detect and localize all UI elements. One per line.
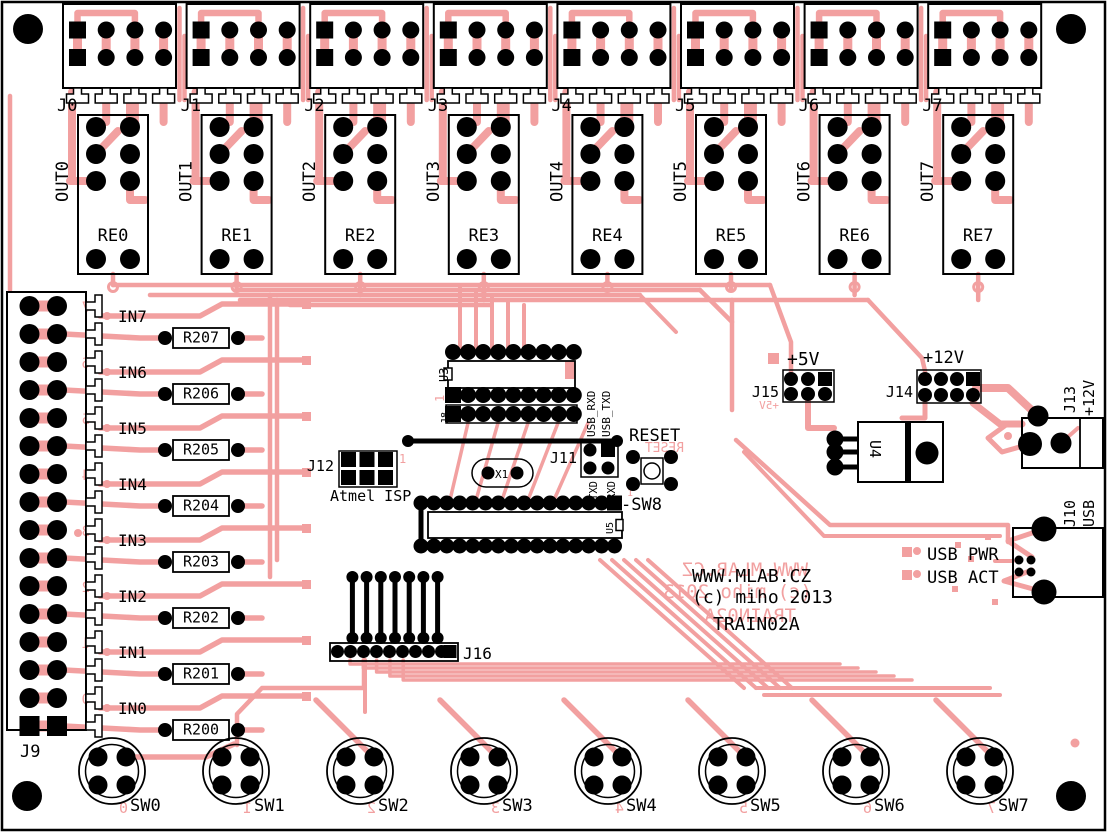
pad — [716, 49, 733, 66]
pad — [784, 372, 798, 386]
label-relay-re6: RE6 — [839, 226, 870, 246]
pad — [457, 144, 477, 164]
pad — [333, 249, 353, 269]
pad — [951, 144, 971, 164]
pad — [1020, 49, 1037, 66]
label-jack-12v: +12V — [1080, 380, 1098, 416]
via-dot — [1004, 432, 1012, 440]
pad — [20, 632, 40, 652]
mounting-hole — [12, 781, 42, 811]
pad — [491, 496, 506, 511]
pad — [566, 344, 582, 360]
copper-pour — [302, 412, 311, 421]
pad — [20, 576, 40, 596]
pad-square — [563, 22, 580, 39]
pad — [1015, 556, 1024, 565]
copper-pour — [302, 524, 311, 533]
label-input: IN5 — [118, 419, 147, 438]
pad — [241, 776, 260, 795]
label-header-j12: J12 — [307, 457, 334, 475]
via-dot — [103, 312, 111, 320]
pad — [950, 372, 964, 386]
pad — [650, 22, 667, 39]
pad — [20, 548, 40, 568]
pad — [457, 171, 477, 191]
label-ic-u3: U3 — [437, 368, 451, 382]
copper-pour — [302, 356, 311, 365]
pad — [833, 748, 852, 767]
pad — [402, 435, 414, 447]
pad — [491, 117, 511, 137]
pad — [555, 496, 570, 511]
pad — [155, 49, 172, 66]
label-connector-j3: J3 — [428, 96, 448, 116]
pad — [126, 49, 143, 66]
via-dot — [913, 547, 921, 555]
label-switch-sw4: SW4 — [626, 796, 657, 816]
pad — [566, 406, 582, 422]
pad — [1051, 433, 1072, 454]
pad — [934, 372, 948, 386]
pad-square — [20, 716, 40, 736]
pad — [517, 496, 532, 511]
pad — [20, 492, 40, 512]
pad — [664, 477, 678, 491]
pad — [521, 344, 537, 360]
pad — [801, 372, 815, 386]
pad-square — [563, 49, 580, 66]
pad — [985, 117, 1005, 137]
pad-square — [811, 49, 828, 66]
pad — [432, 571, 444, 583]
label-brand-title: TRAIN02A — [713, 614, 800, 635]
pad — [489, 776, 508, 795]
pad — [231, 611, 245, 625]
label-ic-u4: U4 — [866, 440, 884, 458]
pad — [709, 776, 728, 795]
label-output-out3: OUT3 — [424, 161, 444, 202]
pad — [374, 22, 391, 39]
pad — [773, 49, 790, 66]
pad — [839, 49, 856, 66]
pad — [521, 387, 537, 403]
pad — [580, 117, 600, 137]
label-switch-sw7: SW7 — [998, 796, 1029, 816]
pad — [86, 171, 106, 191]
label-output-out1: OUT1 — [177, 161, 197, 202]
pad — [20, 380, 40, 400]
pad — [1032, 580, 1057, 605]
pad — [469, 49, 486, 66]
pad — [744, 22, 761, 39]
pad-square — [69, 22, 86, 39]
label-plus12v: +12V — [923, 348, 964, 368]
copper-pour — [302, 636, 311, 645]
pad — [934, 388, 948, 402]
label-connector-j2: J2 — [304, 96, 324, 116]
label-jack-j13: J13 — [1061, 386, 1079, 413]
copper-pour — [985, 534, 991, 540]
copper-pour — [302, 300, 311, 309]
pad — [744, 49, 761, 66]
mounting-hole — [13, 14, 43, 44]
pad — [231, 443, 245, 457]
pad — [985, 249, 1005, 269]
pad — [47, 296, 67, 316]
pad — [738, 249, 758, 269]
pad — [897, 22, 914, 39]
pad — [244, 249, 264, 269]
pad — [536, 387, 552, 403]
label-pin1: 1 — [399, 452, 406, 466]
pad — [614, 117, 634, 137]
pad — [868, 22, 885, 39]
pad — [337, 748, 356, 767]
pad — [862, 117, 882, 137]
pad — [664, 450, 678, 464]
via-dot — [913, 570, 921, 578]
pad — [1027, 568, 1036, 577]
pad — [784, 387, 798, 401]
pad — [461, 776, 480, 795]
pad — [581, 539, 596, 554]
pad — [613, 748, 632, 767]
pad — [331, 645, 344, 658]
pad — [417, 571, 429, 583]
pad — [478, 539, 493, 554]
label-switch-sw2: SW2 — [378, 796, 409, 816]
pad — [613, 776, 632, 795]
pad — [120, 249, 140, 269]
label-usb: USB — [1080, 500, 1098, 527]
pad — [966, 388, 980, 402]
pad — [580, 171, 600, 191]
pad — [117, 776, 136, 795]
pad — [158, 331, 172, 345]
regulator-tab-bar — [905, 422, 911, 482]
pad — [1015, 568, 1024, 577]
pad — [126, 22, 143, 39]
via-dot — [103, 368, 111, 376]
pad — [951, 171, 971, 191]
pcb-layout-train02a: 7654321011RESET1WWW.MLAB.CZ(c) miho 2013… — [0, 0, 1107, 832]
pad-square — [934, 22, 951, 39]
pad — [490, 387, 506, 403]
pad — [155, 22, 172, 39]
pad — [370, 645, 383, 658]
pad — [210, 171, 230, 191]
pad — [482, 467, 495, 480]
pad — [517, 539, 532, 554]
pad — [621, 49, 638, 66]
pad — [210, 117, 230, 137]
pad — [602, 462, 615, 475]
label-header-j15: J15 — [752, 383, 779, 401]
copper-pour — [902, 570, 912, 580]
pad — [158, 555, 172, 569]
label-resistor: R205 — [183, 441, 219, 459]
pad-square — [440, 49, 457, 66]
pad — [345, 22, 362, 39]
pad — [402, 22, 419, 39]
pad — [120, 171, 140, 191]
pad — [241, 748, 260, 767]
pad — [489, 748, 508, 767]
pad — [457, 249, 477, 269]
label-usb-j10: J10 — [1061, 500, 1079, 527]
via-dot — [103, 424, 111, 432]
pad — [20, 408, 40, 428]
pad — [460, 406, 476, 422]
label-header-j16: J16 — [463, 644, 492, 663]
pad — [621, 22, 638, 39]
pad — [963, 22, 980, 39]
pad — [490, 406, 506, 422]
pad — [862, 171, 882, 191]
pad — [231, 331, 245, 345]
pad-square — [687, 22, 704, 39]
pad — [20, 688, 40, 708]
pad — [120, 117, 140, 137]
label-connector-j6: J6 — [799, 96, 819, 116]
label-switch-sw1: SW1 — [254, 796, 285, 816]
pad-square — [360, 470, 375, 485]
pad — [704, 249, 724, 269]
label-connector-j7: J7 — [922, 96, 942, 116]
pad — [738, 144, 758, 164]
pad — [580, 144, 600, 164]
pad-square — [378, 452, 393, 467]
label-output-out2: OUT2 — [300, 161, 320, 202]
pad — [543, 539, 558, 554]
pad — [1018, 432, 1042, 456]
pad — [827, 444, 844, 461]
pad-square — [316, 22, 333, 39]
pad — [47, 380, 67, 400]
pad — [344, 645, 357, 658]
pad — [704, 117, 724, 137]
pad — [985, 144, 1005, 164]
pad — [415, 497, 427, 509]
regulator-hole — [916, 442, 939, 465]
label-output-out7: OUT7 — [918, 161, 938, 202]
pad — [839, 22, 856, 39]
pad — [47, 436, 67, 456]
pad — [47, 464, 67, 484]
label-plus5v: +5V — [787, 349, 820, 370]
pad-square — [69, 49, 86, 66]
pad — [231, 723, 245, 737]
label-switch-sw5: SW5 — [750, 796, 781, 816]
label-resistor: R206 — [183, 385, 219, 403]
label-relay-re2: RE2 — [345, 226, 376, 246]
pad — [950, 388, 964, 402]
label-input: IN2 — [118, 587, 147, 606]
pad — [20, 296, 40, 316]
pad — [704, 171, 724, 191]
pad — [47, 492, 67, 512]
pad — [918, 372, 932, 386]
pad — [475, 344, 491, 360]
pad — [566, 387, 582, 403]
pad — [439, 539, 454, 554]
pad — [439, 496, 454, 511]
pad — [221, 49, 238, 66]
pad — [47, 660, 67, 680]
label-connector-j0: J0 — [57, 96, 77, 116]
pad-square — [341, 470, 356, 485]
label-resistor: R202 — [183, 609, 219, 627]
label-connector-j1: J1 — [181, 96, 201, 116]
label-connector-j4: J4 — [551, 96, 571, 116]
pad — [737, 776, 756, 795]
label-switch-sw6: SW6 — [874, 796, 905, 816]
pad — [526, 22, 543, 39]
pad — [551, 344, 567, 360]
pad-square — [193, 49, 210, 66]
pad — [594, 539, 609, 554]
pad — [250, 22, 267, 39]
pad — [818, 387, 832, 401]
copper-pour — [902, 547, 912, 557]
pad-square — [811, 22, 828, 39]
pad — [86, 249, 106, 269]
pad — [985, 171, 1005, 191]
pad — [868, 49, 885, 66]
label-resistor: R204 — [183, 497, 219, 515]
pad — [551, 406, 567, 422]
pad — [951, 249, 971, 269]
pad — [158, 443, 172, 457]
pad — [511, 467, 524, 480]
pad — [861, 776, 880, 795]
pad — [403, 571, 415, 583]
pad — [210, 249, 230, 269]
pad-square — [607, 496, 622, 511]
pad — [213, 748, 232, 767]
pad — [505, 406, 521, 422]
pad-square — [378, 470, 393, 485]
pad — [827, 459, 844, 476]
pad — [536, 344, 552, 360]
label-header-j8: J8 — [440, 412, 451, 424]
pad — [1020, 22, 1037, 39]
label-usb-pwr: USB PWR — [927, 545, 999, 565]
pad — [333, 117, 353, 137]
pad — [337, 776, 356, 795]
label-resistor: R203 — [183, 553, 219, 571]
pad — [158, 723, 172, 737]
label-header-j14: J14 — [886, 383, 913, 401]
pad — [543, 496, 558, 511]
pad — [957, 776, 976, 795]
pad — [374, 49, 391, 66]
pad — [581, 496, 596, 511]
pad — [367, 117, 387, 137]
pad — [47, 408, 67, 428]
label-atmel-isp: Atmel ISP — [330, 487, 411, 505]
pad-square — [445, 387, 461, 403]
mounting-hole — [1056, 14, 1086, 44]
pad — [426, 496, 441, 511]
pad — [47, 688, 67, 708]
pad — [709, 748, 728, 767]
pad — [279, 22, 296, 39]
pad — [862, 249, 882, 269]
pad — [828, 249, 848, 269]
pcb-board-drawing: 7654321011RESET1WWW.MLAB.CZ(c) miho 2013… — [0, 0, 1107, 832]
pad — [98, 22, 115, 39]
pad — [250, 49, 267, 66]
pad — [158, 387, 172, 401]
pad — [465, 539, 480, 554]
pad — [231, 555, 245, 569]
label-switch-sw0: SW0 — [130, 796, 161, 816]
pad — [452, 496, 467, 511]
pad — [985, 776, 1004, 795]
pad — [504, 496, 519, 511]
pad — [47, 604, 67, 624]
pad — [117, 748, 136, 767]
pad — [244, 144, 264, 164]
copper-pour — [768, 353, 779, 364]
label-resistor: R200 — [183, 721, 219, 739]
pad — [862, 144, 882, 164]
pad — [460, 344, 476, 360]
label-resistor: R201 — [183, 665, 219, 683]
label-input: IN7 — [118, 307, 147, 326]
pad — [20, 520, 40, 540]
pad — [452, 539, 467, 554]
pad-square — [966, 372, 980, 386]
pad — [20, 324, 40, 344]
pad — [738, 117, 758, 137]
pad — [244, 171, 264, 191]
pad — [47, 324, 67, 344]
pad-square — [444, 645, 457, 658]
pad — [526, 49, 543, 66]
mounting-hole — [1056, 781, 1086, 811]
pad — [120, 144, 140, 164]
pad — [568, 496, 583, 511]
copper-pour — [302, 580, 311, 589]
pad — [1032, 517, 1057, 542]
pad-square — [687, 49, 704, 66]
label-resistor: R207 — [183, 329, 219, 347]
label-usb-rxd: USB_RXD — [585, 391, 598, 437]
pad — [47, 632, 67, 652]
pad — [383, 645, 396, 658]
pad — [614, 249, 634, 269]
pad — [333, 144, 353, 164]
pad — [704, 144, 724, 164]
copper-pour — [565, 361, 575, 379]
pad-square — [440, 22, 457, 39]
pad — [957, 748, 976, 767]
pad — [158, 611, 172, 625]
label-usb-txd: USB_TXD — [600, 391, 613, 437]
via-dot — [103, 704, 111, 712]
pad — [1027, 556, 1036, 565]
label-connector-j9: J9 — [20, 742, 40, 762]
pad — [244, 117, 264, 137]
pad — [361, 571, 373, 583]
label-pin1: 1 — [433, 395, 447, 402]
pad — [1028, 406, 1049, 427]
label-input: IN3 — [118, 531, 147, 550]
pad — [445, 344, 461, 360]
pad — [86, 144, 106, 164]
